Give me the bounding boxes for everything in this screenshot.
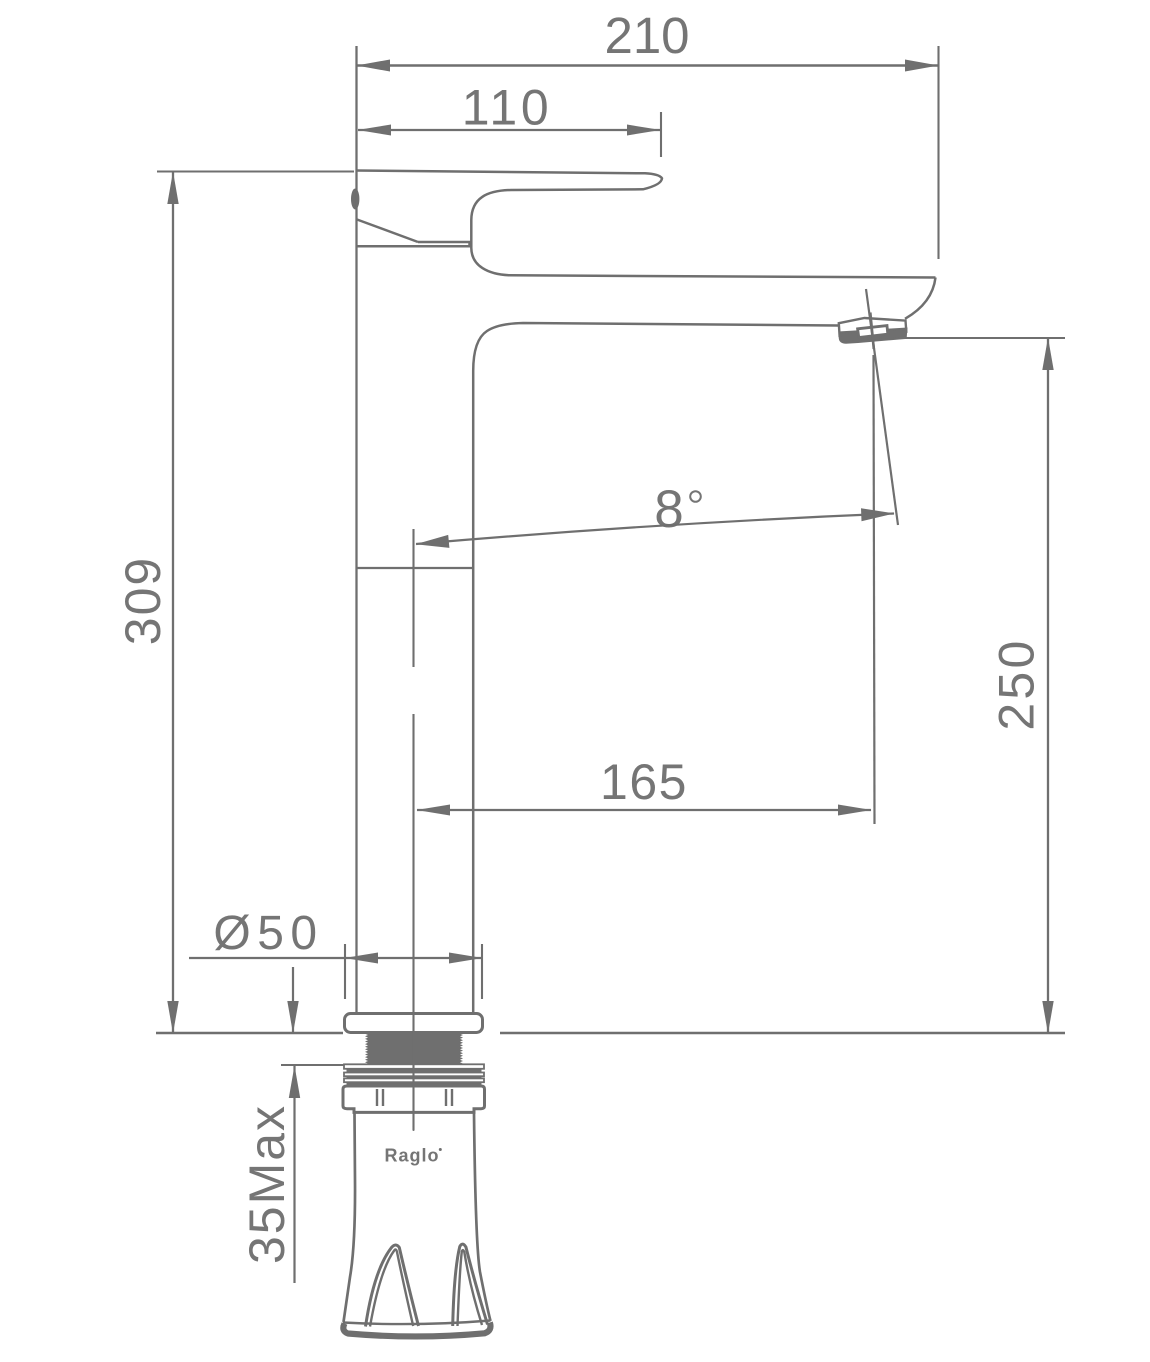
svg-text:210: 210 bbox=[604, 7, 689, 64]
svg-text:309: 309 bbox=[115, 556, 171, 645]
svg-text:250: 250 bbox=[989, 637, 1045, 730]
svg-text:Ø50: Ø50 bbox=[213, 907, 323, 960]
svg-text:8: 8 bbox=[654, 480, 683, 539]
svg-text:35Max: 35Max bbox=[239, 1104, 295, 1264]
svg-text:Raglo: Raglo bbox=[384, 1146, 439, 1166]
svg-text:165: 165 bbox=[600, 754, 688, 810]
svg-text:110: 110 bbox=[462, 80, 553, 136]
